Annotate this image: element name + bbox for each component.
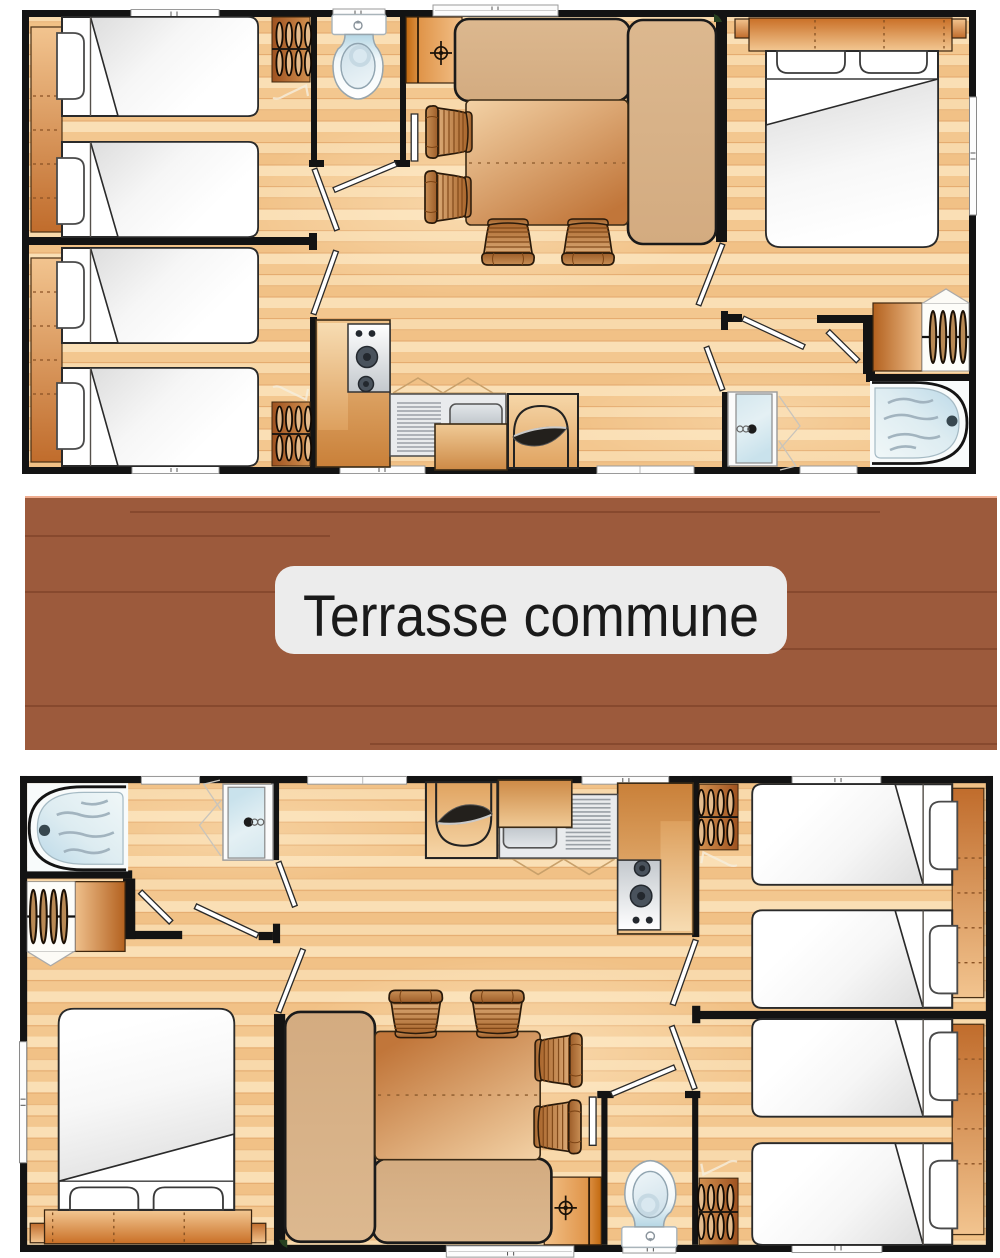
svg-text:Terrasse commune: Terrasse commune [303,584,759,649]
